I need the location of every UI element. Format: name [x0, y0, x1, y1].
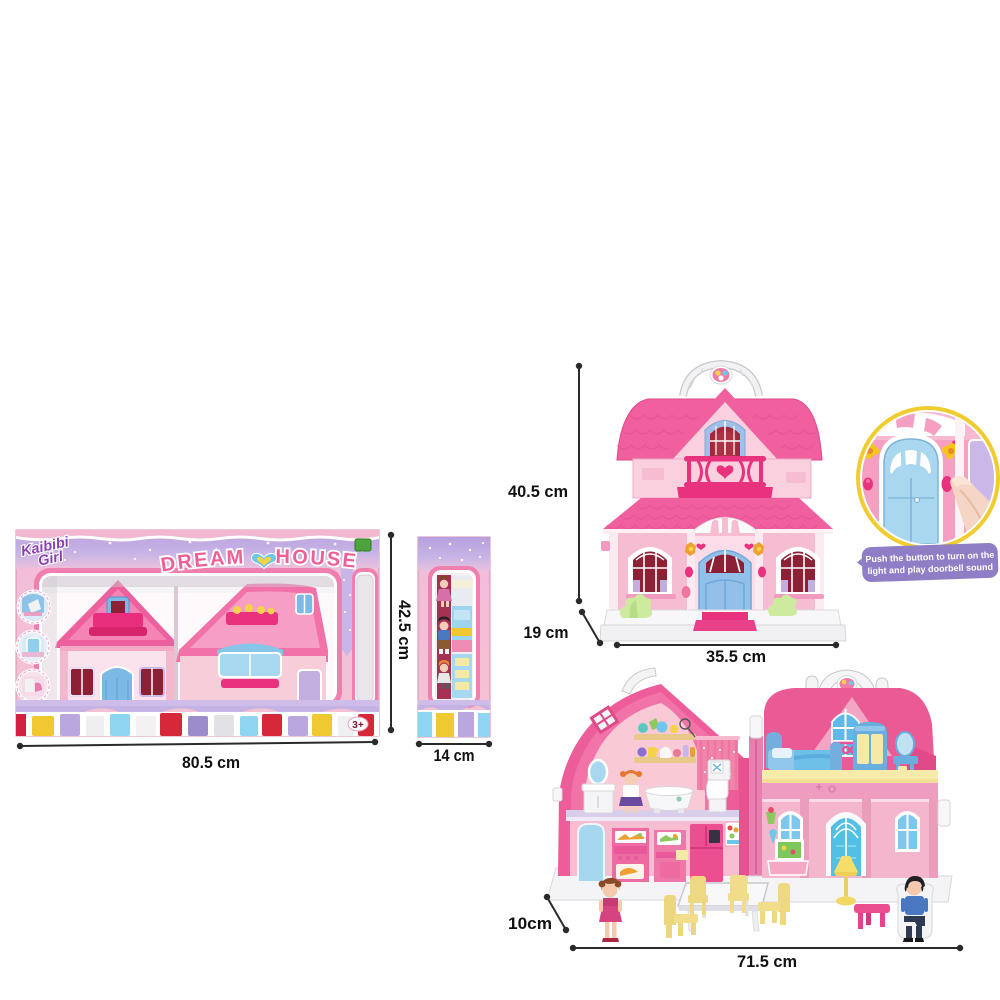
svg-text:40.5 cm: 40.5 cm	[508, 482, 568, 501]
svg-text:71.5 cm: 71.5 cm	[737, 952, 797, 971]
svg-text:42.5 cm: 42.5 cm	[395, 600, 414, 660]
svg-text:35.5 cm: 35.5 cm	[706, 647, 766, 666]
svg-text:3+: 3+	[352, 720, 364, 731]
svg-text:80.5 cm: 80.5 cm	[182, 753, 240, 772]
svg-text:14 cm: 14 cm	[434, 746, 475, 765]
svg-text:19 cm: 19 cm	[524, 623, 569, 642]
svg-text:10cm: 10cm	[508, 914, 552, 933]
